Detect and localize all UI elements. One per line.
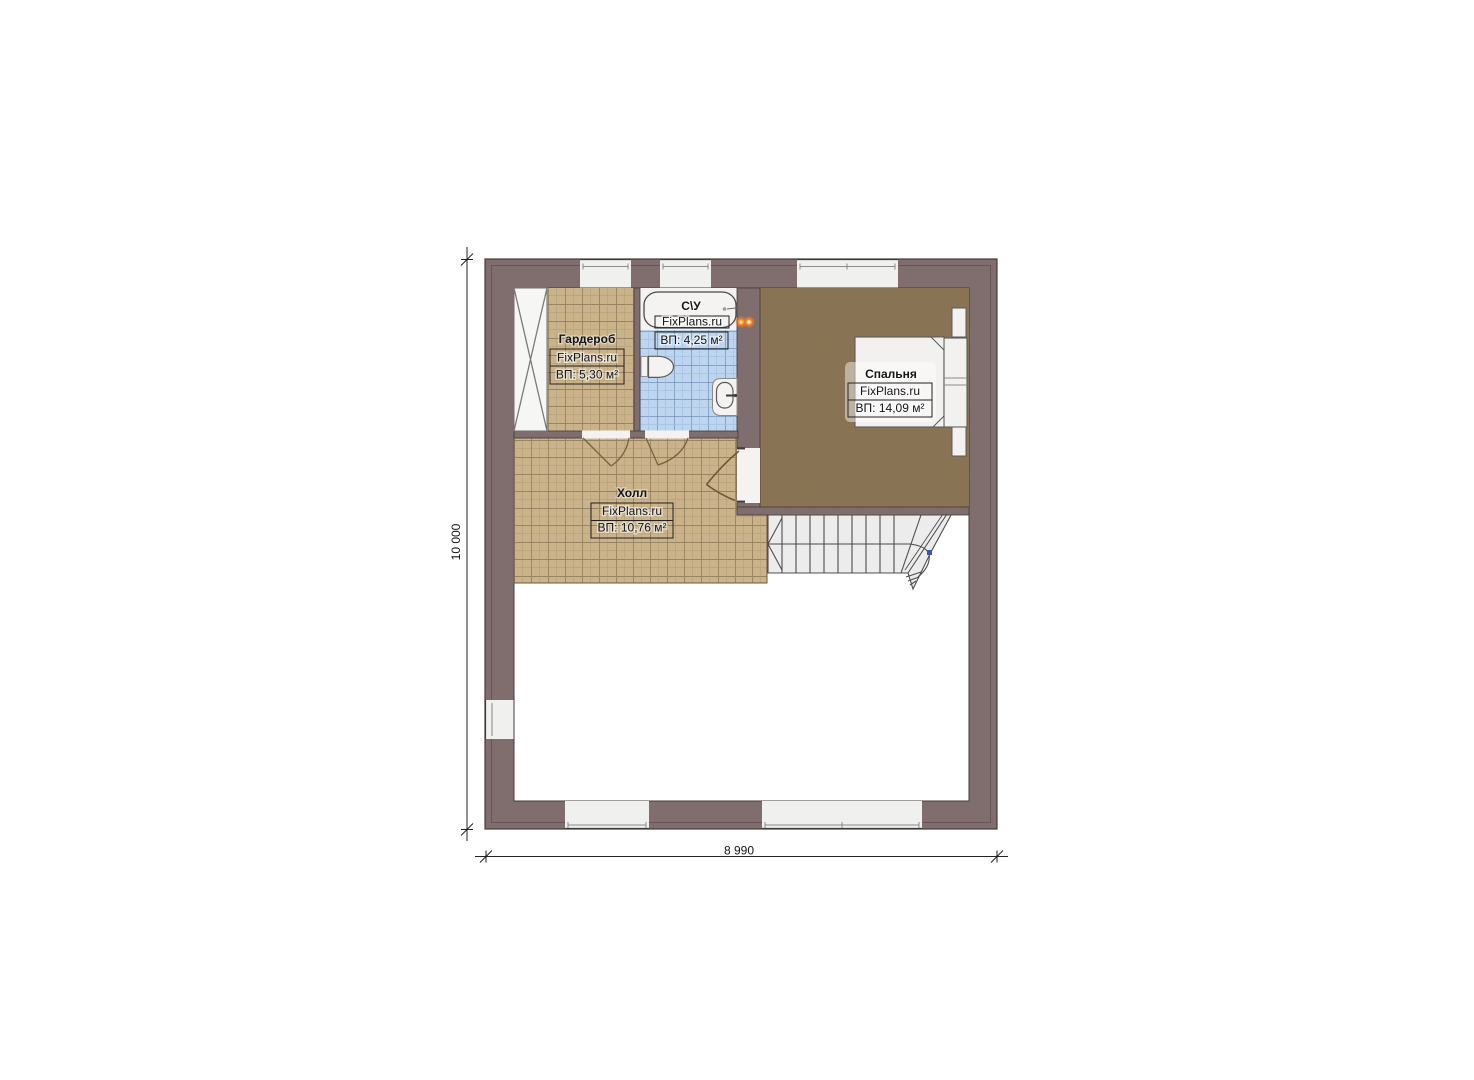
svg-text:ВП: 14,09 м²: ВП: 14,09 м²: [856, 401, 925, 415]
svg-text:ВП: 10,76 м²: ВП: 10,76 м²: [598, 521, 667, 535]
svg-text:Гардероб: Гардероб: [559, 332, 616, 346]
svg-text:ВП: 5,30 м²: ВП: 5,30 м²: [556, 368, 618, 382]
svg-text:10 000: 10 000: [449, 523, 463, 560]
svg-text:FixPlans.ru: FixPlans.ru: [662, 315, 722, 329]
svg-text:Холл: Холл: [617, 486, 647, 500]
svg-text:ВП: 4,25 м²: ВП: 4,25 м²: [660, 333, 722, 347]
svg-text:FixPlans.ru: FixPlans.ru: [602, 504, 662, 518]
svg-text:8 990: 8 990: [724, 844, 754, 858]
svg-text:Спальня: Спальня: [865, 367, 917, 381]
svg-text:FixPlans.ru: FixPlans.ru: [860, 384, 920, 398]
svg-text:FixPlans.ru: FixPlans.ru: [557, 351, 617, 365]
svg-text:С\У: С\У: [681, 299, 701, 313]
